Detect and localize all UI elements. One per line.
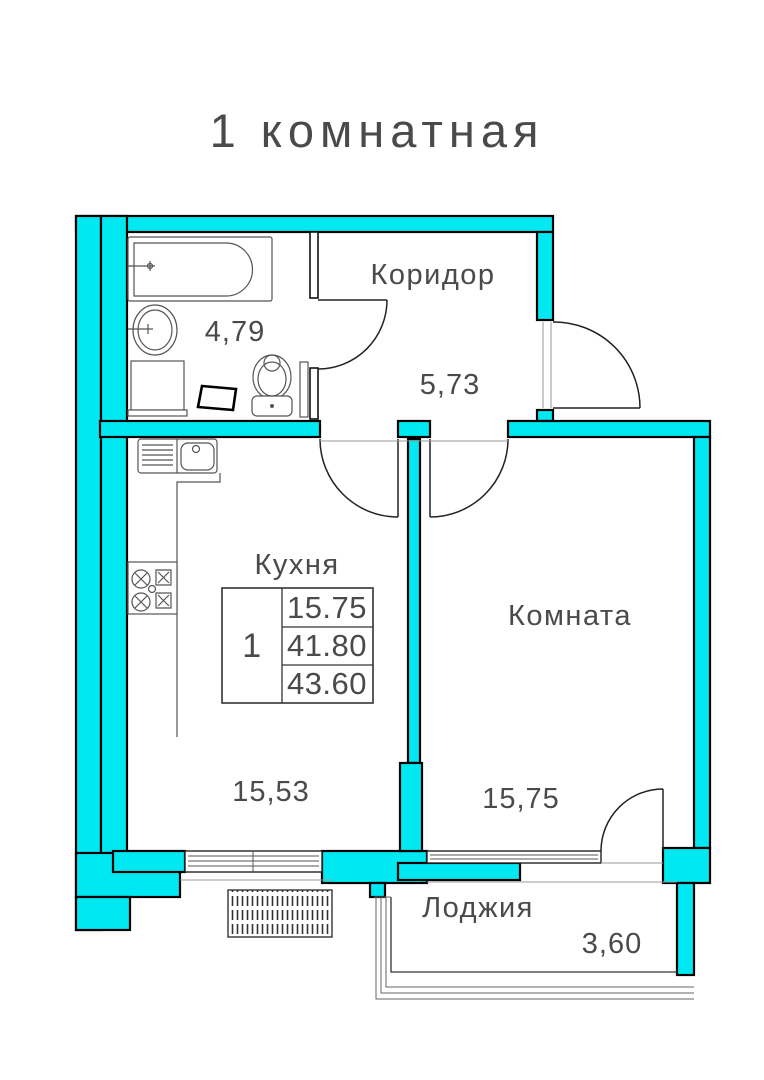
wall-loggia-right (677, 883, 694, 975)
wall-kitchen-window-left (113, 851, 185, 872)
bathroom-partition-upper (310, 232, 318, 298)
wall-band-left (100, 421, 320, 437)
kitchen-window (185, 851, 322, 872)
info-living-area: 15.75 (287, 590, 367, 625)
wall-top (76, 216, 553, 232)
wall-loggia-left-block (370, 883, 385, 897)
vent-grille-hatch (228, 890, 332, 937)
bathroom-partition-lower (310, 368, 318, 419)
room-name-label: Комната (508, 600, 632, 632)
washbasin-outline (133, 305, 177, 355)
wall-under-room-window (398, 863, 520, 880)
loggia-area-label: 3,60 (582, 928, 642, 960)
wall-corridor-right-upper (537, 232, 553, 320)
plan-title: 1 комнатная (210, 104, 545, 157)
wall-left-outer (76, 216, 101, 930)
bath-mat (198, 386, 236, 410)
wall-room-bottom-right-block (663, 848, 710, 883)
info-rooms-count: 1 (242, 627, 261, 665)
wall-partition-bottom-block (400, 763, 422, 851)
apartment-info-table: 1 15.75 41.80 43.60 (222, 588, 373, 703)
wall-bottom-left-step (76, 897, 130, 930)
corridor-area-label: 5,73 (420, 369, 480, 401)
wall-band-center-pier (398, 421, 430, 437)
wall-band-right (508, 421, 710, 437)
corridor-name-label: Коридор (370, 259, 495, 291)
bathroom-area-label: 4,79 (205, 316, 265, 348)
floor-plan-drawing: 1 комнатная (0, 0, 764, 1080)
washing-machine (131, 361, 184, 410)
room-area-label: 15,75 (482, 783, 560, 815)
toilet-tank-dot (270, 404, 274, 408)
loggia-name-label: Лоджия (422, 892, 534, 924)
room-window (427, 851, 601, 863)
kitchen-name-label: Кухня (254, 549, 339, 581)
kitchen-area-label: 15,53 (232, 776, 310, 808)
floor-plan-page: 1 комнатная (0, 0, 764, 1080)
info-apartment-area: 41.80 (287, 628, 367, 663)
info-total-area: 43.60 (287, 666, 367, 701)
room-window-frame (427, 851, 601, 863)
wall-room-right (694, 437, 710, 848)
wall-corridor-right-pier (537, 410, 553, 421)
washing-machine-base (128, 410, 187, 416)
duct-shaft (300, 362, 308, 417)
wall-left-inner (101, 216, 127, 897)
wall-kitchen-room-partition (408, 439, 420, 763)
